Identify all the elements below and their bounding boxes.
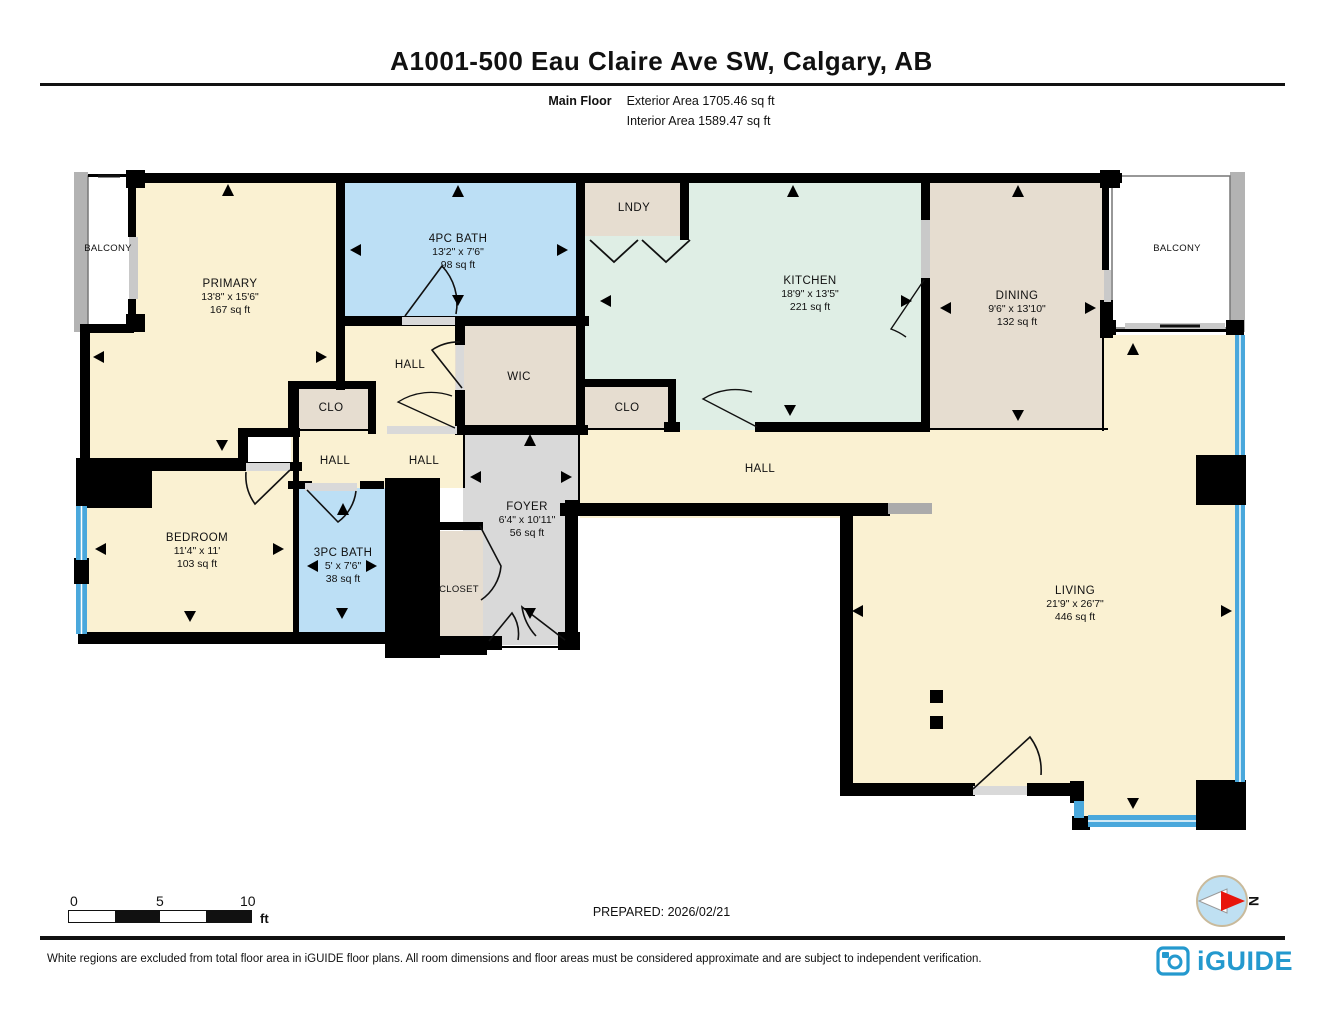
prepared-date: PREPARED: 2026/02/21: [0, 905, 1323, 919]
disclaimer-text: White regions are excluded from total fl…: [47, 953, 1127, 965]
hall-long-label: HALL: [745, 463, 776, 475]
brand-name: iGUIDE: [1197, 946, 1293, 977]
closet-label: CLOSET: [439, 584, 479, 595]
room-fills: [74, 172, 1245, 824]
bath3-name: 3PC BATH: [314, 547, 373, 559]
bath4-area: 98 sq ft: [441, 259, 476, 271]
kitchen-area: 221 sq ft: [790, 301, 830, 313]
kitchen-name: KITCHEN: [783, 275, 836, 287]
foyer-area: 56 sq ft: [510, 527, 545, 539]
wic-label: WIC: [507, 371, 531, 383]
clo-left-label: CLO: [319, 402, 344, 414]
brand-logo: iGUIDE: [1155, 944, 1293, 978]
primary-area: 167 sq ft: [210, 304, 250, 316]
hall-left-label: HALL: [320, 455, 351, 467]
dining-dims: 9'6" x 13'10": [988, 303, 1046, 315]
balcony-left-label: BALCONY: [84, 243, 132, 254]
bath3-area: 38 sq ft: [326, 573, 361, 585]
balcony-right-label: BALCONY: [1153, 243, 1201, 254]
dining-name: DINING: [996, 290, 1039, 302]
kitchen-dims: 18'9" x 13'5": [781, 288, 839, 300]
hall-upper-label: HALL: [395, 359, 426, 371]
iguide-camera-icon: [1155, 944, 1191, 978]
bath4-dims: 13'2" x 7'6": [432, 246, 484, 258]
dining-area: 132 sq ft: [997, 316, 1037, 328]
living-name: LIVING: [1055, 585, 1095, 597]
primary-dims: 13'8" x 15'6": [201, 291, 259, 303]
footer-divider: [40, 936, 1285, 940]
bedroom-dims: 11'4" x 11': [174, 545, 220, 557]
bath4-name: 4PC BATH: [429, 233, 488, 245]
bath3-dims: 5' x 7'6": [325, 560, 362, 572]
primary-name: PRIMARY: [203, 278, 258, 290]
bedroom-area: 103 sq ft: [177, 558, 217, 570]
hall-mid-label: HALL: [409, 455, 440, 467]
floorplan-page: A1001-500 Eau Claire Ave SW, Calgary, AB…: [0, 0, 1323, 1024]
living-area: 446 sq ft: [1055, 611, 1095, 623]
foyer-dims: 6'4" x 10'11": [499, 514, 556, 526]
floorplan-svg: BALCONY BALCONY PRIMARY 13'8" x 15'6" 16…: [0, 0, 1323, 1024]
lndy-name: LNDY: [618, 202, 650, 214]
living-dims: 21'9" x 26'7": [1046, 598, 1104, 610]
bedroom-name: BEDROOM: [166, 532, 228, 544]
foyer-name: FOYER: [506, 501, 548, 513]
clo-mid-label: CLO: [615, 402, 640, 414]
balcony-right-rail: [1230, 172, 1245, 332]
